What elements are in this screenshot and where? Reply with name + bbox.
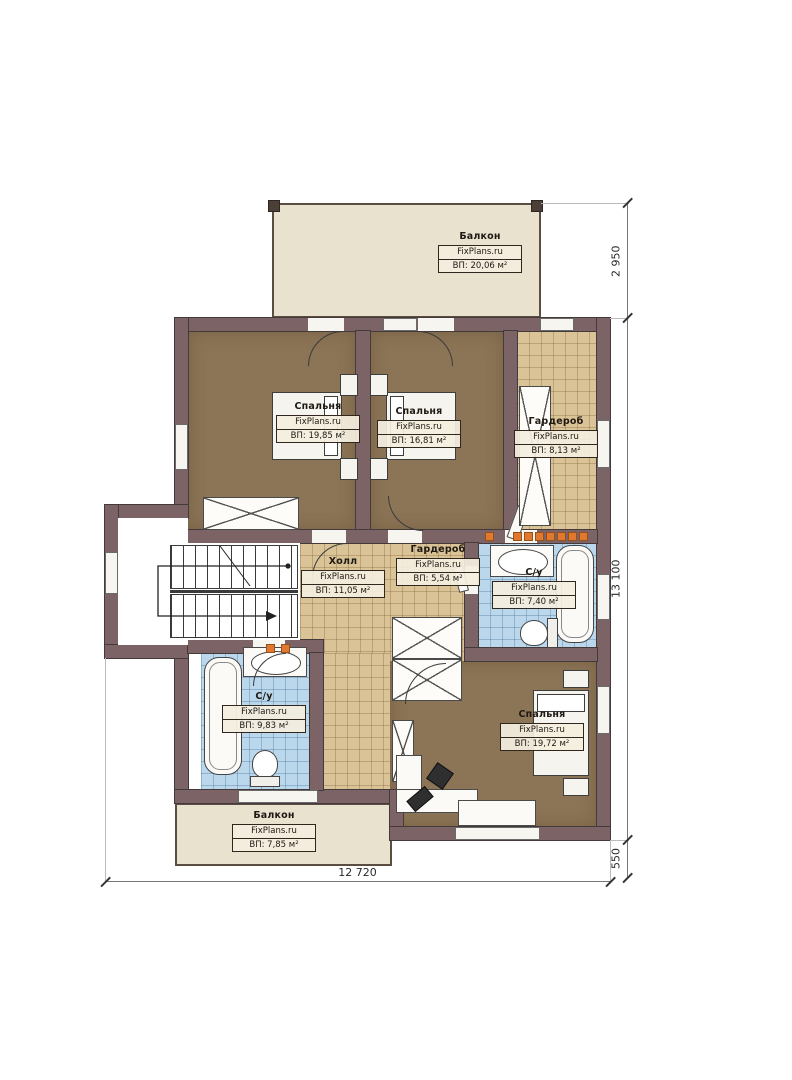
room-label-bathroom-right: С/у FixPlans.ru ВП: 7,40 м² — [492, 567, 576, 609]
room-label-bedroom-2: Спальня FixPlans.ru ВП: 16,81 м² — [377, 406, 461, 448]
window-top-2 — [540, 318, 574, 331]
room-area: ВП: 7,40 м² — [492, 596, 576, 610]
room-label-wardrobe-1: Гардероб FixPlans.ru ВП: 8,13 м² — [514, 416, 598, 458]
room-name: Балкон — [438, 231, 522, 243]
window-bay — [105, 552, 118, 594]
window-bottom-left — [238, 790, 318, 803]
heater-marker-icon — [513, 532, 522, 541]
room-name: Спальня — [500, 709, 584, 721]
heater-marker-icon — [266, 644, 275, 653]
wall-left-lower — [175, 645, 188, 803]
room-name: Гардероб — [396, 544, 480, 556]
wall-bathroom-left-right — [310, 653, 323, 790]
hall-floor-lower — [323, 653, 390, 790]
room-name: С/у — [222, 691, 306, 703]
extension-line — [105, 658, 106, 881]
stairs-direction-arrow — [120, 520, 300, 645]
room-label-bedroom-3: Спальня FixPlans.ru ВП: 19,72 м² — [500, 709, 584, 751]
nightstand-b2-bottom — [370, 458, 388, 480]
dresser-bedroom-3 — [458, 800, 536, 826]
room-area: ВП: 19,85 м² — [276, 430, 360, 444]
nightstand-b3-top — [563, 670, 589, 688]
heater-marker-icon — [579, 532, 588, 541]
brand-label: FixPlans.ru — [438, 245, 522, 260]
window-bottom-right — [455, 827, 540, 840]
heater-marker-icon — [557, 532, 566, 541]
dim-label-house-height: 13 100 — [608, 539, 624, 619]
brand-label: FixPlans.ru — [232, 824, 316, 839]
brand-label: FixPlans.ru — [500, 723, 584, 738]
dim-label-bottom-step: 550 — [608, 841, 624, 877]
room-label-balcony-top: Балкон FixPlans.ru ВП: 20,06 м² — [438, 231, 522, 273]
heater-marker-icon — [524, 532, 533, 541]
wall-left-upper — [175, 318, 188, 518]
wall-bathroom-right-bottom — [465, 648, 597, 661]
room-name: Балкон — [232, 810, 316, 822]
room-area: ВП: 20,06 м² — [438, 260, 522, 274]
brand-label: FixPlans.ru — [222, 705, 306, 720]
toilet-tank-left — [250, 776, 280, 787]
brand-label: FixPlans.ru — [514, 430, 598, 445]
room-label-hall: Холл FixPlans.ru ВП: 11,05 м² — [301, 556, 385, 598]
door-opening-bedroom-2 — [388, 530, 422, 543]
nightstand-b1-bottom — [340, 458, 358, 480]
nightstand-b2-top — [370, 374, 388, 396]
toilet-bathroom-right — [520, 620, 548, 646]
nightstand-b3-bottom — [563, 778, 589, 796]
heater-marker-icon — [281, 644, 290, 653]
room-area: ВП: 9,83 м² — [222, 720, 306, 734]
room-label-wardrobe-2: Гардероб FixPlans.ru ВП: 5,54 м² — [396, 544, 480, 586]
brand-label: FixPlans.ru — [396, 558, 480, 573]
dimension-line-horizontal — [105, 881, 610, 882]
room-name: Холл — [301, 556, 385, 568]
heater-marker-icon — [535, 532, 544, 541]
room-area: ВП: 11,05 м² — [301, 585, 385, 599]
room-name: Спальня — [377, 406, 461, 418]
window-right-3 — [597, 686, 610, 734]
room-name: Гардероб — [514, 416, 598, 428]
balcony-post-left — [268, 200, 280, 212]
heater-marker-icon — [485, 532, 494, 541]
brand-label: FixPlans.ru — [276, 415, 360, 430]
room-area: ВП: 7,85 м² — [232, 839, 316, 853]
room-area: ВП: 19,72 м² — [500, 738, 584, 752]
heater-marker-icon — [546, 532, 555, 541]
toilet-bathroom-left — [252, 750, 278, 778]
room-area: ВП: 5,54 м² — [396, 573, 480, 587]
dimension-line-vertical — [627, 203, 628, 878]
room-label-bedroom-1: Спальня FixPlans.ru ВП: 19,85 м² — [276, 401, 360, 443]
window-top-1 — [383, 318, 417, 331]
room-label-balcony-bottom: Балкон FixPlans.ru ВП: 7,85 м² — [232, 810, 316, 852]
brand-label: FixPlans.ru — [377, 420, 461, 435]
room-name: С/у — [492, 567, 576, 579]
wall-bay-bottom — [105, 645, 188, 658]
room-area: ВП: 8,13 м² — [514, 445, 598, 459]
dim-label-balcony-depth: 2 950 — [608, 226, 624, 296]
room-label-bathroom-left: С/у FixPlans.ru ВП: 9,83 м² — [222, 691, 306, 733]
door-opening-balcony-1 — [308, 318, 344, 331]
floor-plan: Балкон FixPlans.ru ВП: 20,06 м² Спальня … — [0, 0, 792, 1080]
room-area: ВП: 16,81 м² — [377, 435, 461, 449]
dim-label-house-width: 12 720 — [320, 866, 395, 879]
window-left — [175, 424, 188, 470]
nightstand-b1-top — [340, 374, 358, 396]
heater-marker-icon — [568, 532, 577, 541]
window-right-2 — [597, 574, 610, 620]
extension-line — [541, 203, 629, 204]
window-right-1 — [597, 420, 610, 468]
door-opening-balcony-2 — [418, 318, 454, 331]
balcony-post-right — [531, 200, 543, 212]
cabinet-hall-1 — [392, 617, 462, 659]
room-name: Спальня — [276, 401, 360, 413]
brand-label: FixPlans.ru — [301, 570, 385, 585]
brand-label: FixPlans.ru — [492, 581, 576, 596]
door-opening-hall — [312, 530, 346, 543]
toilet-tank-right — [547, 618, 558, 648]
